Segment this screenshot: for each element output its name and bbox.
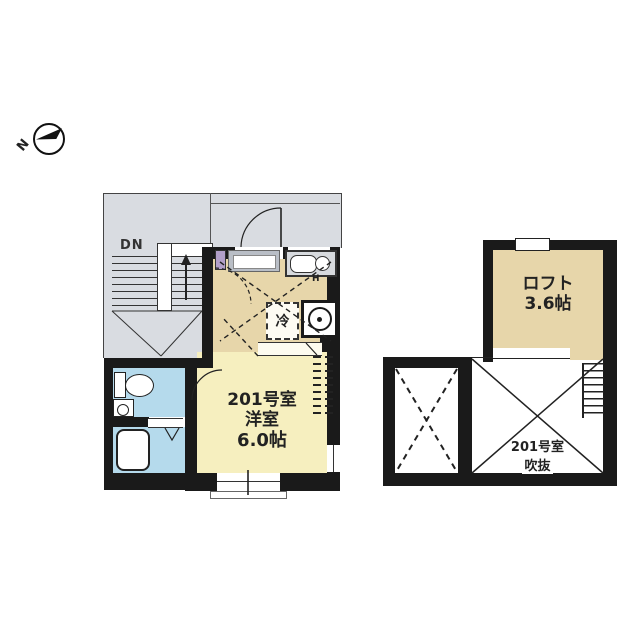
wall-segment [104, 473, 197, 490]
loft-label-block: ロフト 3.6帖 [493, 274, 603, 315]
void-label-block: 201号室 吹抜 [472, 436, 603, 474]
stair-treads-right [172, 256, 202, 312]
void-label: 吹抜 [522, 460, 552, 474]
stairwell-void-dashed-x [396, 369, 457, 472]
refrigerator-label: 冷 [276, 311, 290, 331]
compass-north-label: N [14, 137, 32, 155]
wall-segment [383, 357, 395, 486]
burner-label: H [312, 274, 320, 284]
stairs-down-label: DN [120, 238, 144, 253]
corridor-line [210, 193, 211, 247]
room-number-label: 201号室 [197, 391, 327, 410]
loft-floor-edge [570, 348, 603, 360]
wall-segment [185, 358, 197, 473]
entrance-step [258, 342, 322, 356]
wall-segment [383, 473, 617, 486]
floorplan-canvas: N DN [0, 0, 640, 640]
wall-segment [458, 357, 472, 486]
stair-treads-left [112, 256, 157, 312]
wall-segment [202, 247, 213, 368]
wall-segment [483, 240, 493, 362]
room-201-label-block: 201号室 洋室 6.0帖 [197, 391, 327, 451]
bathroom-sliding-door [148, 418, 183, 428]
washbasin [113, 399, 134, 417]
loft-edge-line [472, 357, 493, 358]
basin-bowl-icon [117, 404, 129, 416]
room-type-label: 洋室 [197, 410, 327, 430]
kitchen-counter [228, 250, 280, 272]
loft-window [515, 238, 550, 251]
wall-segment [113, 417, 149, 427]
sink-icon [290, 255, 317, 273]
room-bottom-window [217, 473, 280, 491]
void-ladder [582, 363, 604, 418]
loft-name-label: ロフト [493, 274, 603, 294]
refrigerator-space: 冷 [266, 302, 299, 340]
kitchen-sink-unit [285, 250, 337, 277]
window-line [333, 445, 334, 472]
washer-stove-unit [301, 300, 338, 338]
burner-icon [315, 256, 330, 271]
compass: N [18, 118, 78, 168]
compass-circle-icon [33, 123, 65, 155]
corridor-line [210, 203, 340, 204]
shoe-cabinet [215, 250, 226, 270]
toilet-bowl-icon [125, 374, 154, 397]
bathtub [116, 429, 150, 471]
wall-segment [104, 358, 113, 490]
window-sill [210, 491, 287, 499]
void-room-number-label: 201号室 [509, 440, 566, 455]
drum-icon [308, 307, 332, 331]
wall-segment [603, 240, 617, 486]
loft-opening [493, 348, 570, 359]
wall-segment [320, 338, 340, 352]
room-size-label: 6.0帖 [197, 430, 327, 451]
drum-center-dot [317, 317, 322, 322]
wall-segment [327, 471, 340, 491]
compass-needle-icon [36, 126, 62, 152]
loft-size-label: 3.6帖 [493, 294, 603, 315]
room-side-window [327, 445, 340, 472]
stair-rail [157, 243, 172, 311]
counter-top [233, 255, 276, 269]
window-line [217, 481, 280, 482]
wall-segment [185, 473, 218, 491]
